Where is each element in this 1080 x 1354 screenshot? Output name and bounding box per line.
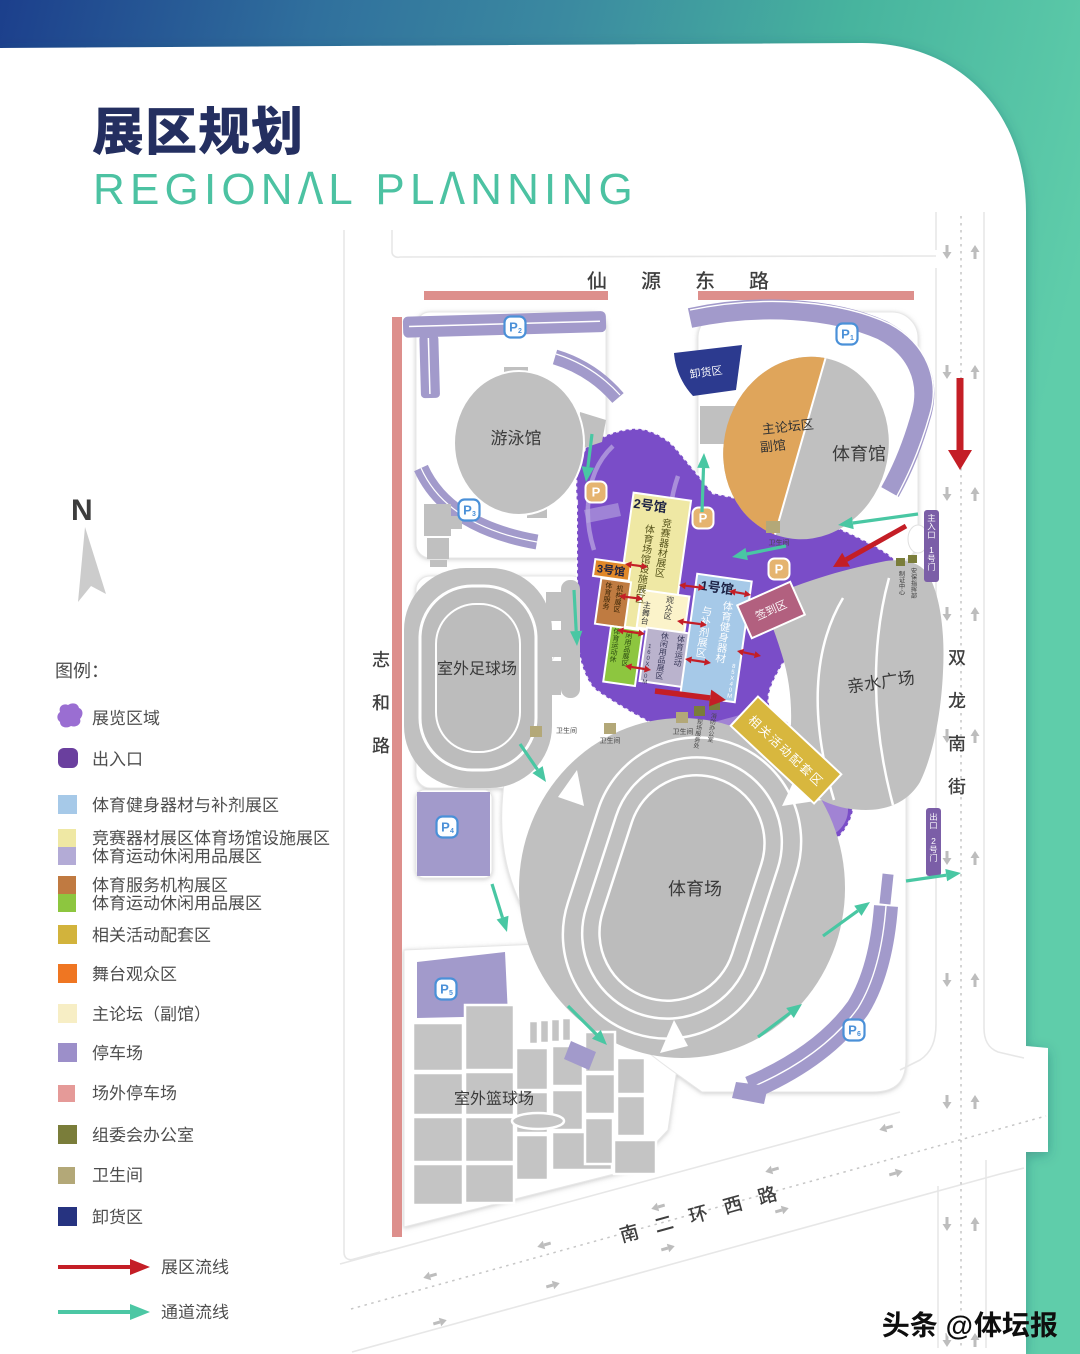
svg-text:P: P: [775, 562, 784, 577]
svg-text:@: @: [946, 1310, 973, 1341]
svg-text:P: P: [841, 327, 850, 342]
svg-text:5: 5: [449, 990, 453, 997]
svg-text:1: 1: [850, 335, 854, 342]
svg-text:2: 2: [931, 836, 936, 846]
svg-text:4: 4: [450, 828, 454, 835]
svg-text:L: L: [328, 165, 358, 214]
svg-text:P: P: [699, 511, 708, 526]
svg-text:P: P: [463, 503, 472, 518]
svg-text:1: 1: [929, 545, 934, 555]
svg-text:M: M: [642, 679, 648, 686]
svg-text:P: P: [592, 485, 601, 500]
svg-text:NNING: NNING: [470, 165, 638, 214]
svg-text:P: P: [441, 820, 450, 835]
svg-text:2: 2: [518, 328, 522, 335]
svg-text:N: N: [71, 494, 93, 527]
svg-text:P: P: [440, 982, 449, 997]
svg-text:P: P: [509, 320, 518, 335]
svg-text:PL: PL: [375, 165, 439, 214]
svg-text:3: 3: [472, 511, 476, 518]
svg-text:6: 6: [857, 1031, 861, 1038]
svg-text:P: P: [848, 1023, 857, 1038]
svg-text:M: M: [727, 693, 733, 700]
svg-text:REGION: REGION: [93, 165, 298, 214]
